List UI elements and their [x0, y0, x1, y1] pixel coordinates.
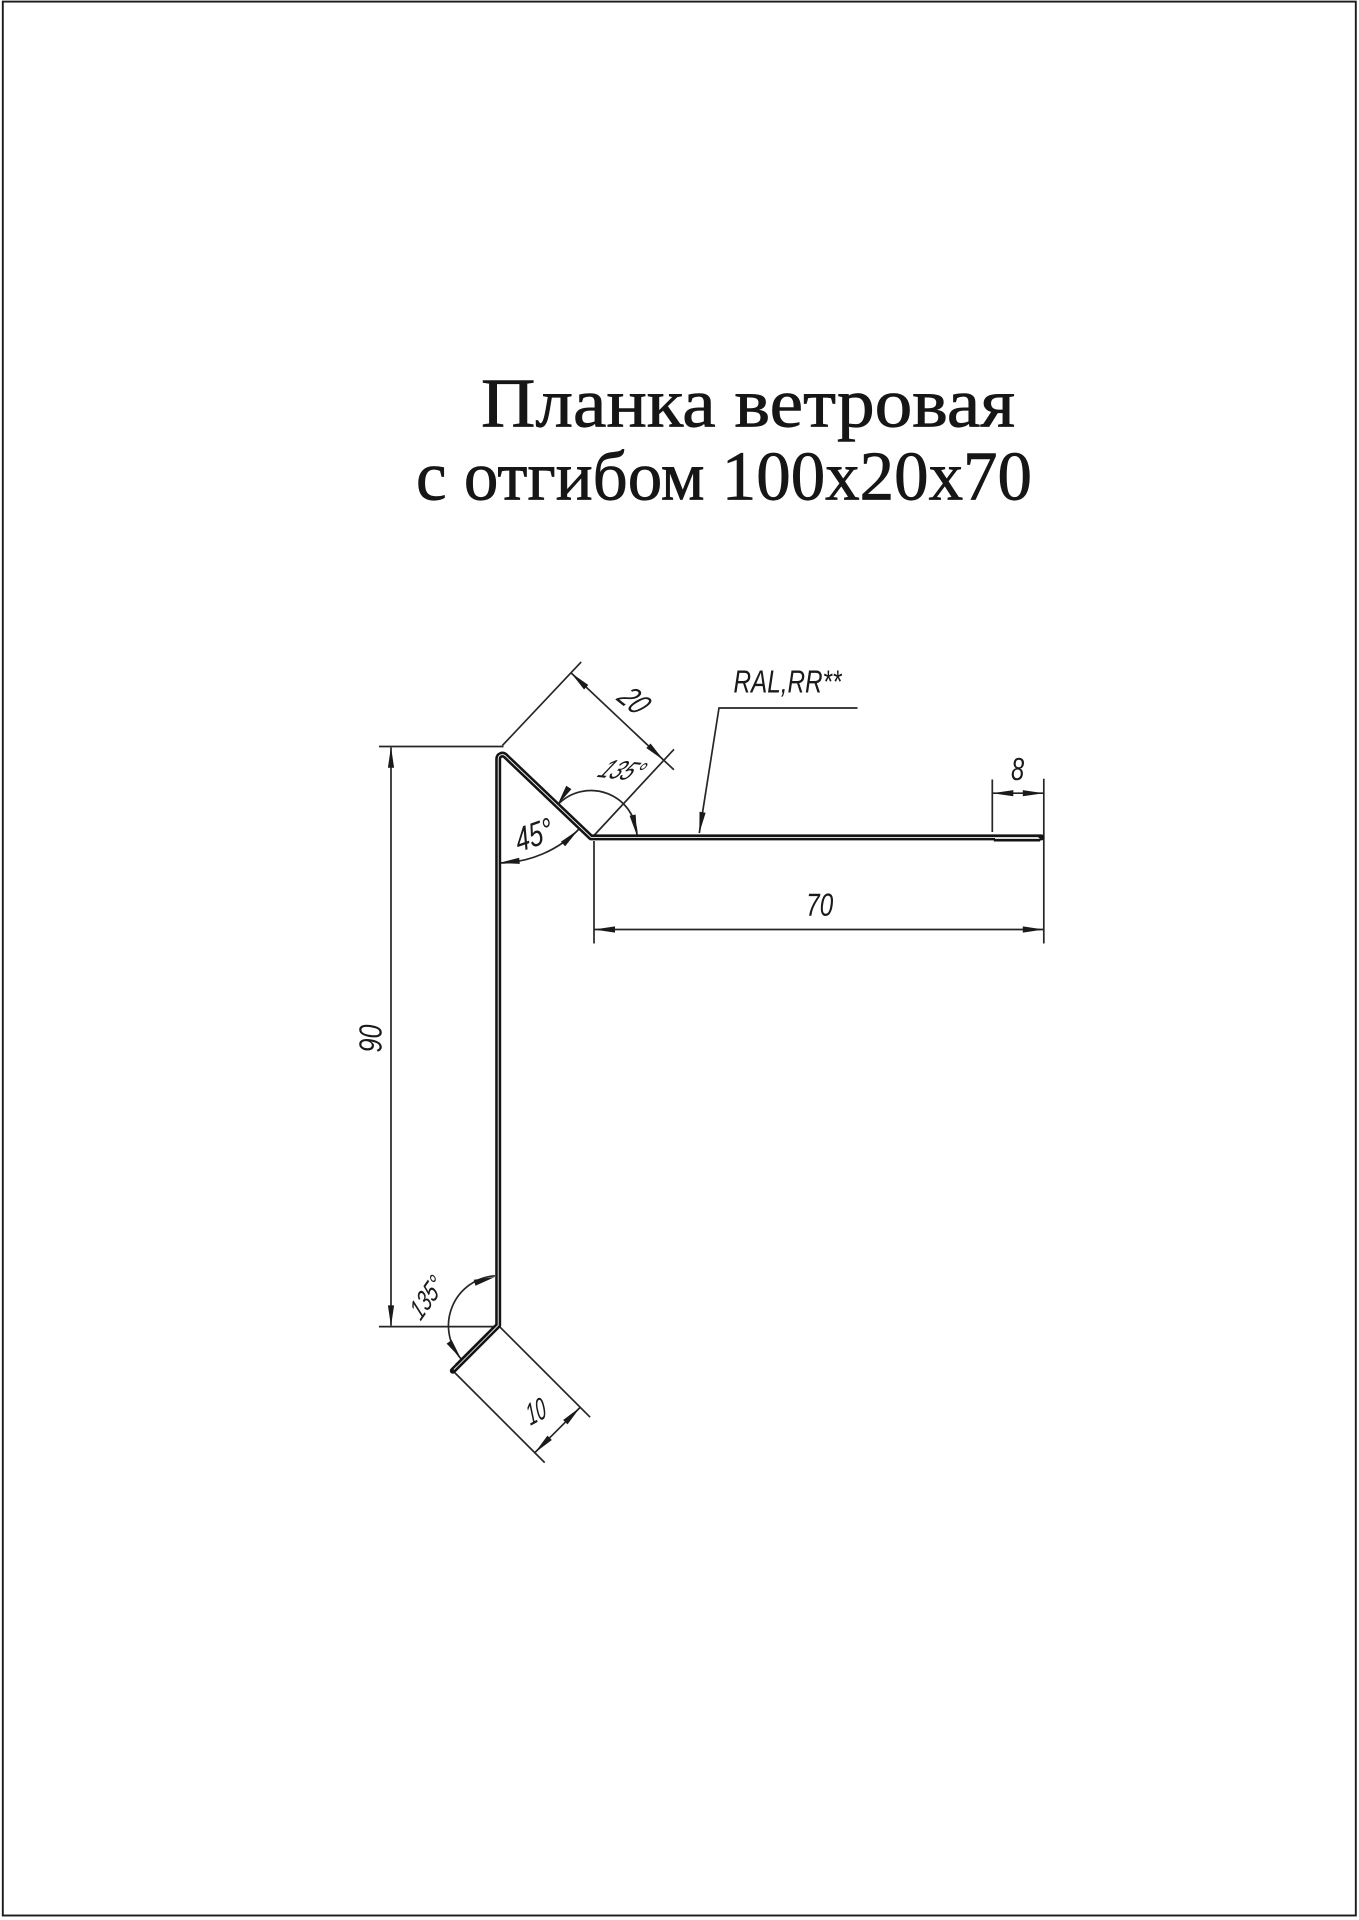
- svg-text:Планка ветровая: Планка ветровая: [481, 366, 1015, 443]
- svg-text:с отгибом 100х20х70: с отгибом 100х20х70: [416, 438, 1032, 515]
